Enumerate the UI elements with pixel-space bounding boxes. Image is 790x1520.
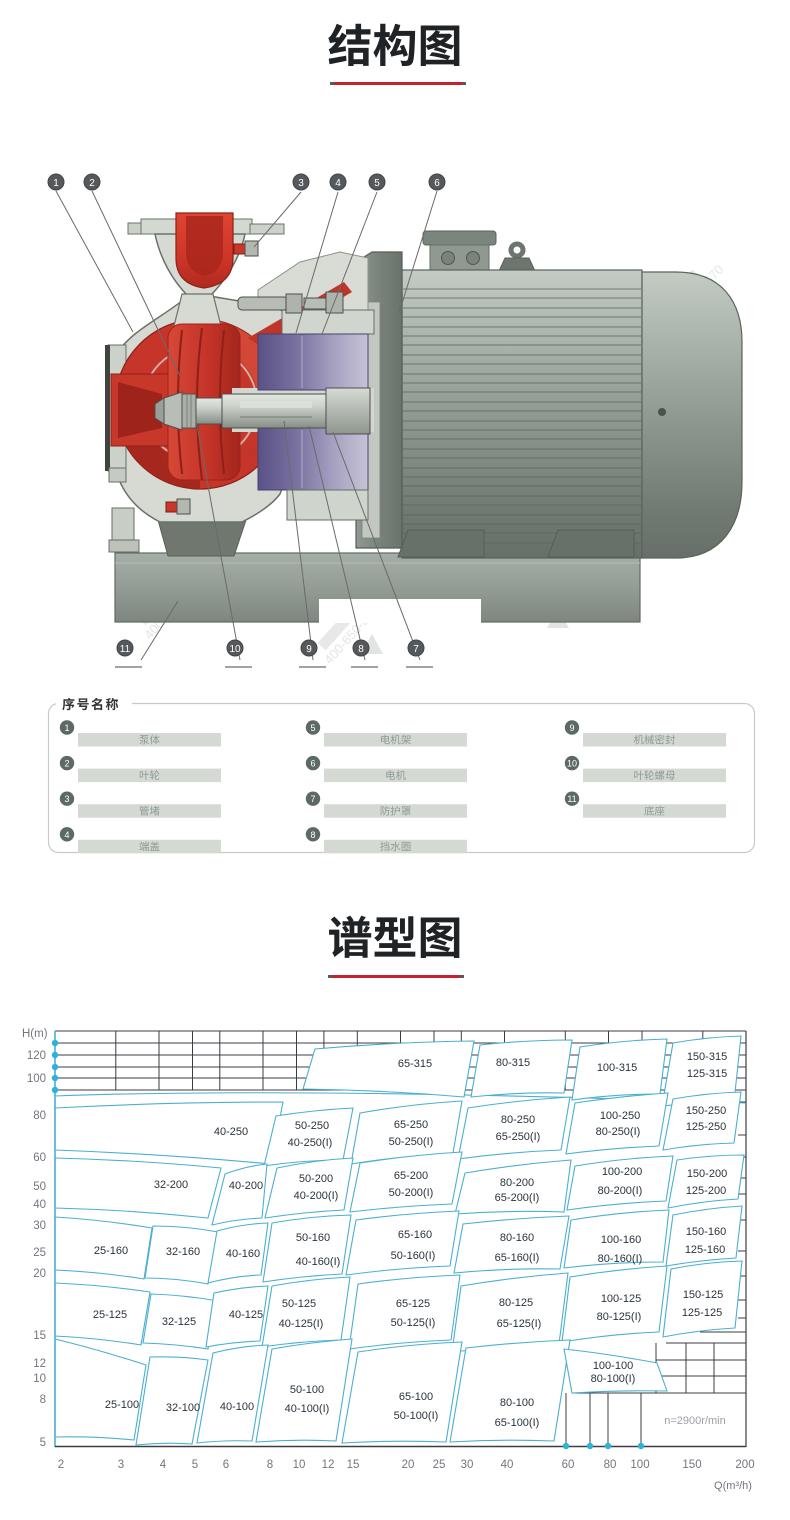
svg-text:10: 10	[567, 759, 577, 769]
svg-text:65-315: 65-315	[398, 1058, 432, 1070]
svg-text:80: 80	[604, 1459, 617, 1471]
svg-text:25: 25	[433, 1459, 446, 1471]
svg-text:5: 5	[192, 1459, 198, 1471]
svg-text:100-160: 100-160	[601, 1234, 641, 1246]
svg-text:6: 6	[434, 178, 440, 189]
svg-text:65-125: 65-125	[396, 1298, 430, 1310]
svg-text:125-200: 125-200	[686, 1185, 726, 1197]
svg-text:10: 10	[229, 644, 241, 655]
svg-text:8: 8	[40, 1394, 46, 1406]
svg-text:15: 15	[347, 1459, 360, 1471]
svg-text:9: 9	[306, 644, 312, 655]
svg-text:125-125: 125-125	[682, 1307, 722, 1319]
svg-text:50-160(I): 50-160(I)	[391, 1250, 436, 1262]
svg-text:125-160: 125-160	[685, 1244, 725, 1256]
svg-text:32-160: 32-160	[166, 1246, 200, 1258]
svg-text:150-125: 150-125	[683, 1289, 723, 1301]
svg-text:65-250(I): 65-250(I)	[496, 1131, 541, 1143]
svg-text:5: 5	[40, 1437, 46, 1449]
svg-text:40-100: 40-100	[220, 1401, 254, 1413]
svg-text:65-100(I): 65-100(I)	[495, 1417, 540, 1429]
svg-text:120: 120	[27, 1050, 46, 1062]
svg-text:10: 10	[33, 1373, 46, 1385]
svg-text:n=2900r/min: n=2900r/min	[664, 1415, 725, 1427]
svg-text:40-160: 40-160	[226, 1248, 260, 1260]
svg-text:5: 5	[310, 723, 315, 733]
svg-text:40: 40	[33, 1199, 46, 1211]
svg-text:50: 50	[33, 1181, 46, 1193]
svg-text:40-125: 40-125	[229, 1309, 263, 1321]
svg-text:80-100(I): 80-100(I)	[591, 1373, 636, 1385]
svg-text:100: 100	[27, 1073, 46, 1085]
svg-text:125-250: 125-250	[686, 1121, 726, 1133]
svg-text:60: 60	[562, 1459, 575, 1471]
svg-text:40-250(I): 40-250(I)	[288, 1137, 333, 1149]
svg-text:100-250: 100-250	[600, 1110, 640, 1122]
svg-text:H(m): H(m)	[22, 1028, 48, 1040]
svg-text:65-200(I): 65-200(I)	[495, 1192, 540, 1204]
svg-text:50-125(I): 50-125(I)	[391, 1317, 436, 1329]
svg-text:100-125: 100-125	[601, 1293, 641, 1305]
svg-text:150: 150	[682, 1459, 701, 1471]
svg-text:80-125: 80-125	[499, 1297, 533, 1309]
svg-text:2: 2	[58, 1459, 64, 1471]
svg-text:100-200: 100-200	[602, 1166, 642, 1178]
svg-text:9: 9	[569, 723, 574, 733]
svg-text:7: 7	[310, 794, 315, 804]
svg-text:150-200: 150-200	[687, 1168, 727, 1180]
svg-text:40-100(I): 40-100(I)	[285, 1403, 330, 1415]
svg-text:80-200(I): 80-200(I)	[598, 1185, 643, 1197]
svg-text:40-250: 40-250	[214, 1126, 248, 1138]
svg-text:25-100: 25-100	[105, 1399, 139, 1411]
svg-text:50-100(I): 50-100(I)	[394, 1410, 439, 1422]
svg-text:40: 40	[501, 1459, 514, 1471]
svg-text:1: 1	[64, 723, 69, 733]
svg-text:50-250(I): 50-250(I)	[389, 1136, 434, 1148]
svg-text:15: 15	[33, 1330, 46, 1342]
svg-text:3: 3	[298, 178, 304, 189]
svg-text:25: 25	[33, 1247, 46, 1259]
svg-text:30: 30	[33, 1220, 46, 1232]
svg-text:10: 10	[293, 1459, 306, 1471]
svg-text:25-125: 25-125	[93, 1309, 127, 1321]
svg-text:8: 8	[310, 830, 315, 840]
svg-text:80-160(I): 80-160(I)	[598, 1253, 643, 1265]
svg-text:6: 6	[310, 759, 315, 769]
svg-text:6: 6	[223, 1459, 229, 1471]
svg-text:80-315: 80-315	[496, 1057, 530, 1069]
svg-text:5: 5	[374, 178, 380, 189]
svg-text:125-315: 125-315	[687, 1068, 727, 1080]
svg-text:7: 7	[413, 644, 419, 655]
svg-text:2: 2	[64, 759, 69, 769]
svg-text:100-315: 100-315	[597, 1062, 637, 1074]
svg-text:150-250: 150-250	[686, 1105, 726, 1117]
svg-text:200: 200	[735, 1459, 754, 1471]
svg-text:150-315: 150-315	[687, 1051, 727, 1063]
svg-text:3: 3	[64, 794, 69, 804]
svg-text:1: 1	[53, 178, 59, 189]
svg-text:20: 20	[33, 1268, 46, 1280]
svg-text:80-100: 80-100	[500, 1397, 534, 1409]
svg-text:32-100: 32-100	[166, 1402, 200, 1414]
svg-text:50-125: 50-125	[282, 1298, 316, 1310]
svg-text:30: 30	[461, 1459, 474, 1471]
svg-text:80: 80	[33, 1110, 46, 1122]
svg-text:50-200(I): 50-200(I)	[389, 1187, 434, 1199]
svg-text:50-160: 50-160	[296, 1232, 330, 1244]
svg-text:4: 4	[160, 1459, 167, 1471]
svg-text:4: 4	[335, 178, 341, 189]
svg-text:50-250: 50-250	[295, 1120, 329, 1132]
svg-text:80-200: 80-200	[500, 1177, 534, 1189]
svg-text:40-200: 40-200	[229, 1180, 263, 1192]
svg-text:150-160: 150-160	[686, 1226, 726, 1238]
svg-text:50-200: 50-200	[299, 1173, 333, 1185]
svg-text:65-125(I): 65-125(I)	[497, 1318, 542, 1330]
svg-text:20: 20	[402, 1459, 415, 1471]
svg-text:40-160(I): 40-160(I)	[296, 1256, 341, 1268]
svg-text:Q(m³/h): Q(m³/h)	[714, 1480, 752, 1492]
svg-text:12: 12	[322, 1459, 335, 1471]
svg-text:65-250: 65-250	[394, 1119, 428, 1131]
svg-text:4: 4	[64, 830, 69, 840]
svg-text:11: 11	[567, 794, 576, 804]
svg-text:32-125: 32-125	[162, 1316, 196, 1328]
svg-text:8: 8	[267, 1459, 273, 1471]
svg-text:80-160: 80-160	[500, 1232, 534, 1244]
svg-text:65-160: 65-160	[398, 1229, 432, 1241]
svg-text:65-200: 65-200	[394, 1170, 428, 1182]
svg-text:40-125(I): 40-125(I)	[279, 1318, 324, 1330]
svg-text:80-250(I): 80-250(I)	[596, 1126, 641, 1138]
svg-text:100-100: 100-100	[593, 1360, 633, 1372]
svg-text:25-160: 25-160	[94, 1245, 128, 1257]
svg-text:65-160(I): 65-160(I)	[495, 1252, 540, 1264]
svg-text:65-100: 65-100	[399, 1391, 433, 1403]
svg-text:12: 12	[33, 1358, 46, 1370]
svg-text:3: 3	[118, 1459, 124, 1471]
svg-text:40-200(I): 40-200(I)	[294, 1190, 339, 1202]
svg-text:50-100: 50-100	[290, 1384, 324, 1396]
svg-text:2: 2	[89, 178, 95, 189]
svg-text:100: 100	[630, 1459, 649, 1471]
svg-text:60: 60	[33, 1152, 46, 1164]
svg-text:80-250: 80-250	[501, 1114, 535, 1126]
svg-text:80-125(I): 80-125(I)	[597, 1311, 642, 1323]
svg-text:32-200: 32-200	[154, 1179, 188, 1191]
svg-text:11: 11	[120, 644, 131, 655]
svg-text:8: 8	[358, 644, 364, 655]
